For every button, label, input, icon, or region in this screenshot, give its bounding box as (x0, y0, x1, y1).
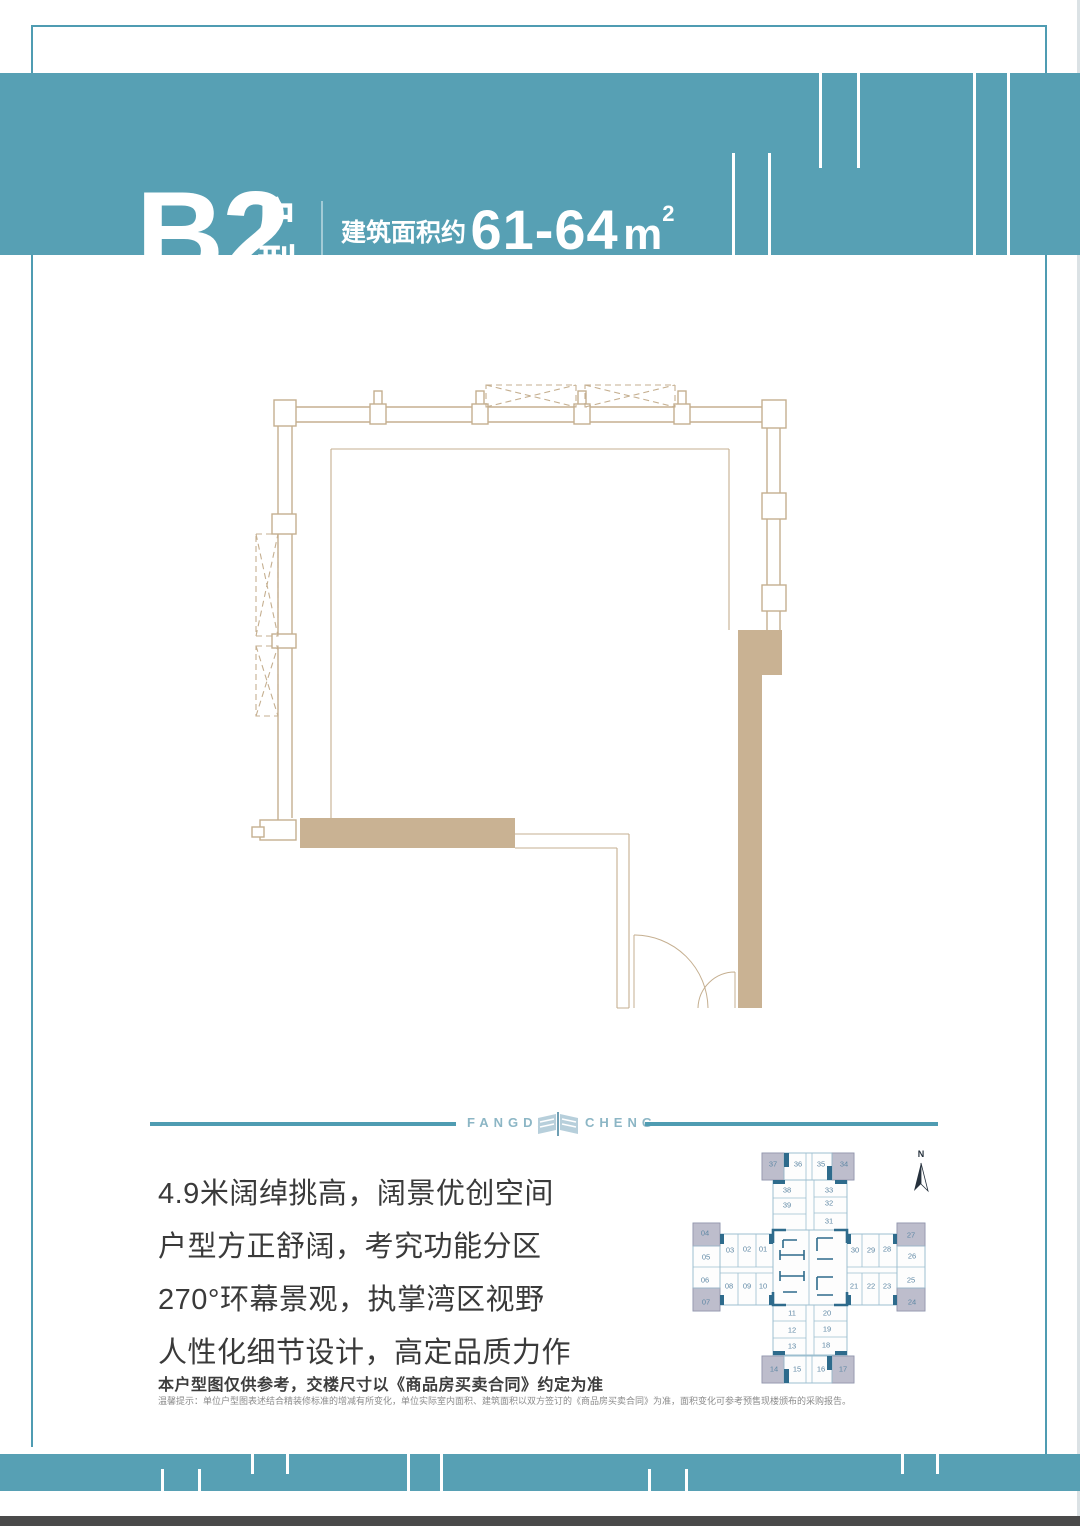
keyplan-unit-number: 37 (769, 1160, 777, 1169)
solid-wall-fills (300, 630, 782, 1008)
area-line-imperial: 建筑面积约 657-689 呎 (341, 252, 673, 297)
keyplan-unit-number: 21 (850, 1282, 858, 1291)
keyplan-unit-number: 17 (839, 1365, 847, 1374)
band-tick (901, 1454, 904, 1474)
footer-band (0, 1454, 1080, 1491)
band-tick (685, 1469, 688, 1491)
band-tick (732, 153, 735, 255)
keyplan-unit-number: 07 (702, 1298, 710, 1307)
keyplan-unit-number: 36 (794, 1160, 802, 1169)
area-label: 建筑面积约 (341, 219, 466, 247)
keyplan-unit-number: 14 (770, 1365, 778, 1374)
keyplan-unit-number: 12 (788, 1326, 796, 1335)
keyplan-unit-number: 39 (783, 1201, 791, 1210)
keyplan-unit-number: 33 (825, 1186, 833, 1195)
keyplan-unit-number: 27 (907, 1231, 915, 1240)
band-tick (286, 1454, 289, 1474)
keyplan-unit-number: 10 (759, 1282, 767, 1291)
brand-divider-right (645, 1122, 938, 1126)
disclaimer-main: 本户型图仅供参考，交楼尺寸以《商品房买卖合同》约定为准 (158, 1371, 604, 1395)
svg-text:N: N (918, 1149, 925, 1159)
band-tick (440, 1454, 443, 1491)
keyplan-unit-number: 22 (867, 1282, 875, 1291)
hatched-window-boxes (256, 385, 675, 716)
keyplan-unit-number: 01 (759, 1245, 767, 1254)
band-tick (161, 1469, 164, 1491)
band-tick (819, 73, 822, 168)
north-arrow: N (914, 1149, 928, 1191)
keyplan-unit-number: 08 (725, 1282, 733, 1291)
keyplan-unit-number: 11 (788, 1309, 796, 1318)
keyplan-unit-number: 24 (908, 1298, 916, 1307)
band-tick (768, 153, 771, 255)
band-tick (936, 1454, 939, 1474)
flyer-page: B2 户型 (房号：04/07/14/17/24/27/34/37) 建筑面积约… (0, 0, 1080, 1526)
keyplan-unit-number: 28 (883, 1245, 891, 1254)
keyplan-unit-number: 09 (743, 1282, 751, 1291)
keyplan-unit-number: 16 (817, 1365, 825, 1374)
keyplan-unit-number: 38 (783, 1186, 791, 1195)
keyplan-unit-number: 13 (788, 1342, 796, 1351)
feature-line: 4.9米阔绰挑高，阔景优创空间 (158, 1168, 571, 1221)
band-tick (857, 73, 860, 168)
keyplan-unit-number: 19 (823, 1325, 831, 1334)
frame-top-line (31, 25, 1046, 27)
building-key-plan: N 37363534383339323104050607030201080910… (680, 1143, 970, 1403)
band-tick (1007, 73, 1010, 255)
feature-line: 270°环幕景观，执掌湾区视野 (158, 1274, 571, 1327)
floorplan-drawing (248, 368, 793, 1028)
keyplan-unit-number: 32 (825, 1199, 833, 1208)
band-tick (251, 1454, 254, 1474)
keyplan-unit-number: 15 (793, 1365, 801, 1374)
band-tick (648, 1469, 651, 1491)
keyplan-unit-number: 18 (822, 1341, 830, 1350)
keyplan-unit-number: 26 (908, 1252, 916, 1261)
bottom-dark-bar (0, 1516, 1080, 1526)
keyplan-unit-number: 30 (851, 1246, 859, 1255)
brand-logo-mark (537, 1108, 579, 1138)
band-tick (973, 73, 976, 255)
keyplan-unit-number: 20 (823, 1309, 831, 1318)
keyplan-unit-number: 25 (907, 1276, 915, 1285)
brand-divider-left (150, 1122, 456, 1126)
keyplan-unit-number: 04 (701, 1229, 709, 1238)
keyplan-unit-number: 34 (840, 1160, 848, 1169)
keyplan-unit-number: 29 (867, 1246, 875, 1255)
keyplan-unit-number: 23 (883, 1282, 891, 1291)
header-divider (321, 201, 323, 301)
keyplan-unit-number: 03 (726, 1246, 734, 1255)
keyplan-unit-number: 06 (701, 1276, 709, 1285)
wall-outline (278, 407, 786, 836)
keyplan-unit-number: 31 (825, 1217, 833, 1226)
keyplan-unit-number: 02 (743, 1245, 751, 1254)
band-tick (198, 1469, 201, 1491)
unit-suffix: 户型 (256, 195, 302, 289)
keyplan-unit-number: 35 (817, 1160, 825, 1169)
keyplan-unit-number: 05 (702, 1253, 710, 1262)
header-band: B2 户型 (房号：04/07/14/17/24/27/34/37) 建筑面积约… (0, 73, 1080, 255)
feature-list: 4.9米阔绰挑高，阔景优创空间 户型方正舒阔，考究功能分区 270°环幕景观，执… (158, 1168, 571, 1380)
feature-line: 户型方正舒阔，考究功能分区 (158, 1221, 571, 1274)
band-tick (407, 1454, 410, 1491)
